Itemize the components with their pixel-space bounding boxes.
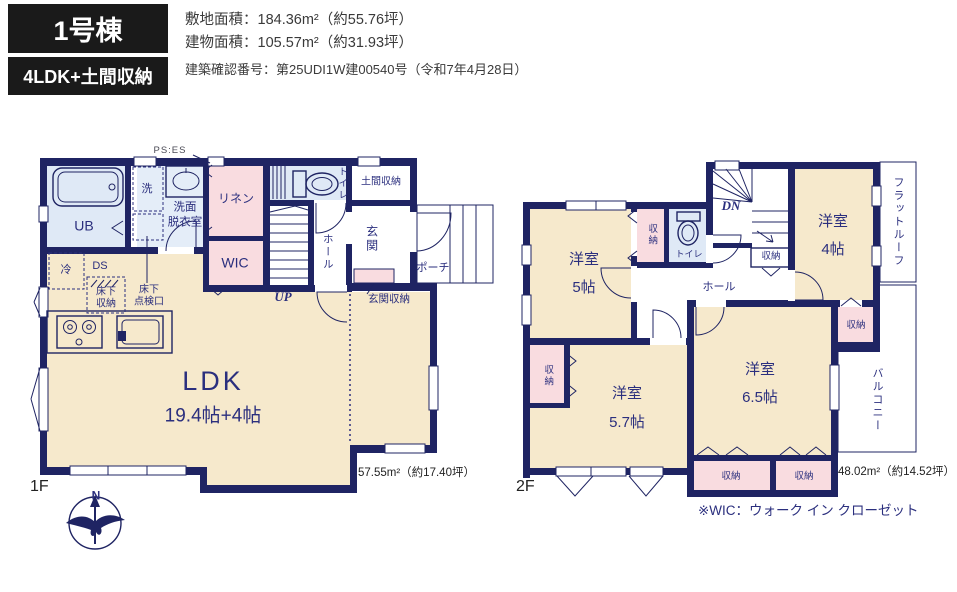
label-dn: DN — [722, 199, 741, 213]
f2-area-text: 48.02m²（約14.52坪） — [838, 466, 955, 479]
label-room57-name: 洋室 — [612, 386, 642, 403]
label-closet-stairs: 収納 — [761, 252, 780, 262]
compass-icon — [66, 495, 125, 549]
label-ldk: LDK — [182, 367, 244, 397]
f2-room5-floor — [530, 209, 631, 343]
label-closet-57: 収納 — [542, 365, 552, 388]
floorplan-flyer: 1号棟 4LDK+土間収納 敷地面積：184.36m²（約55.76坪） 建物面… — [0, 0, 957, 592]
label-room5-name: 洋室 — [569, 252, 599, 269]
label-underfloor-storage-1: 床下 — [96, 287, 116, 298]
f2-room65-floor — [694, 307, 831, 456]
label-room5-size: 5帖 — [572, 280, 595, 297]
label-balcony: バルコニー — [871, 368, 883, 433]
label-room4-size: 4帖 — [821, 242, 844, 259]
label-fridge: 冷 — [61, 264, 72, 276]
label-room4-name: 洋室 — [818, 214, 848, 231]
label-washroom-2: 脱衣室 — [168, 217, 203, 230]
label-ldk-size: 19.4帖+4帖 — [165, 407, 262, 428]
label-ds: DS — [92, 260, 107, 272]
label-underfloor-access-2: 点検口 — [134, 297, 164, 308]
label-underfloor-access-1: 床下 — [139, 285, 159, 296]
label-porch: ポーチ — [417, 262, 450, 274]
label-flat-roof: フラットルーフ — [892, 177, 904, 268]
f2-room4-floor — [795, 169, 873, 300]
layout-text: 4LDK+土間収納 — [23, 63, 153, 89]
label-closet-b1: 収納 — [721, 472, 740, 482]
label-laundry: 洗 — [142, 183, 153, 195]
f1-stairs — [270, 206, 308, 287]
compass-n: N — [92, 489, 101, 502]
building-area-text: 建物面積：105.57m²（約31.93坪） — [185, 31, 413, 52]
unit-badge: 1号棟 — [8, 4, 168, 53]
label-doma: 土間収納 — [361, 177, 401, 188]
label-up: UP — [274, 290, 291, 304]
label-closet-a: 収納 — [646, 224, 656, 247]
label-ub: UB — [74, 218, 93, 233]
label-underfloor-storage-2: 収納 — [96, 299, 116, 310]
label-room57-size: 5.7帖 — [609, 415, 645, 432]
label-hall-1f: ホール — [321, 233, 333, 271]
label-room65-name: 洋室 — [745, 362, 775, 379]
label-hall-2f: ホール — [703, 281, 736, 293]
wic-note: ※WIC：ウォーク イン クローゼット — [698, 503, 919, 519]
label-room65-size: 6.5帖 — [742, 390, 778, 407]
label-genkan: 玄関 — [364, 225, 377, 253]
f1-floor-name: 1F — [30, 478, 49, 496]
label-closet-4: 収納 — [846, 321, 865, 331]
f1-room-fills — [47, 165, 430, 485]
label-wic: WIC — [221, 255, 248, 270]
f2-floor-name: 2F — [516, 478, 535, 496]
label-closet-b2: 収納 — [794, 472, 813, 482]
f1-area-text: 57.55m²（約17.40坪） — [358, 467, 475, 480]
label-ps-es: PS:ES — [154, 146, 187, 156]
f1-genkan-storage-box — [354, 269, 394, 283]
label-toilet-1f: トイレ — [336, 167, 346, 202]
label-toilet-2f: トイレ — [675, 250, 702, 260]
label-linen: リネン — [218, 192, 254, 205]
label-washroom-1: 洗面 — [174, 202, 197, 215]
label-genkan-storage: 玄関収納 — [368, 294, 410, 306]
site-area-text: 敷地面積：184.36m²（約55.76坪） — [185, 8, 413, 29]
permit-text: 建築確認番号：第25UDI1W建00540号（令和7年4月28日） — [185, 59, 527, 78]
layout-badge: 4LDK+土間収納 — [8, 57, 168, 95]
unit-name: 1号棟 — [53, 9, 122, 48]
